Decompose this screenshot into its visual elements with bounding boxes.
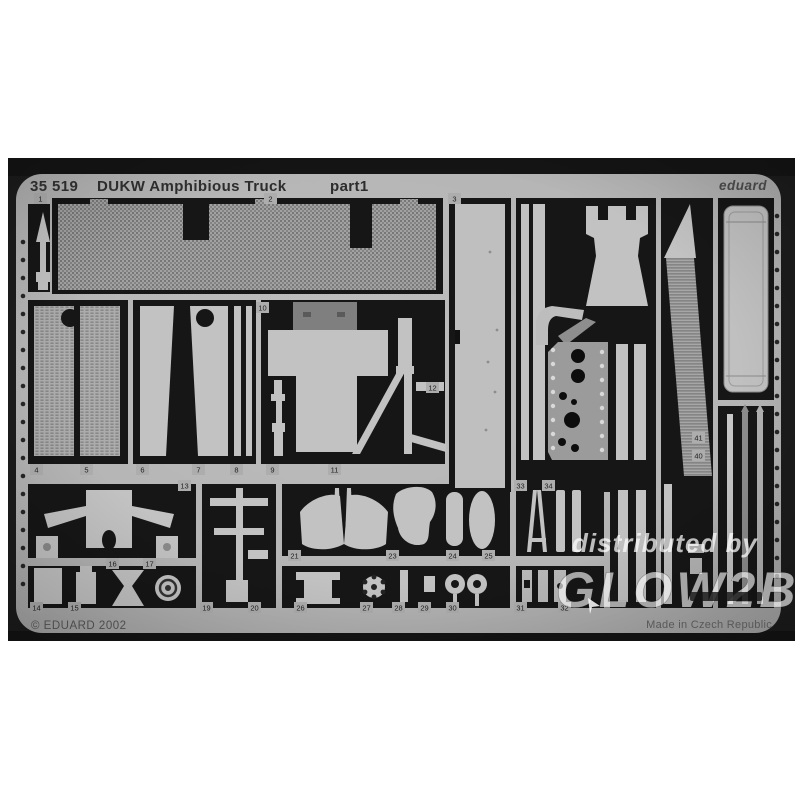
photo-etch-fret-photo: 1234567891011121314151617192021232425262… (0, 0, 800, 800)
sheet-title: DUKW Amphibious Truck (97, 178, 287, 195)
watermark-dark-bar (690, 592, 762, 601)
catalog-number: 35 519 (30, 178, 78, 195)
brand-logo-text: eduard (719, 178, 767, 193)
watermark-line1: distributed by (572, 528, 758, 558)
product-photo-page: 1234567891011121314151617192021232425262… (0, 0, 800, 800)
watermark-line2: GLOW2B (556, 562, 799, 618)
sheet-part-label: part1 (330, 178, 369, 195)
made-in-text: Made in Czech Republic (646, 619, 772, 631)
copyright-text: © EDUARD 2002 (31, 620, 127, 632)
